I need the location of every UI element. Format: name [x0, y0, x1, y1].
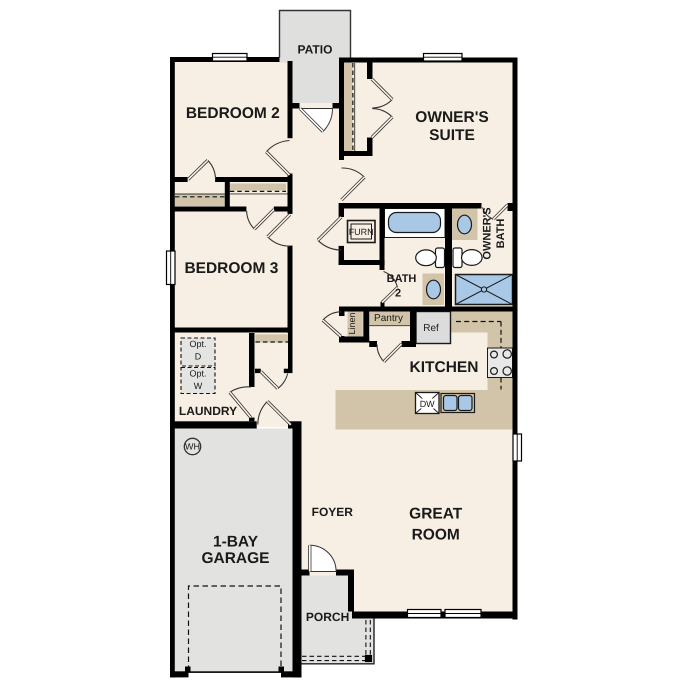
svg-text:ROOM: ROOM [412, 526, 460, 543]
svg-text:1-BAY: 1-BAY [213, 534, 259, 551]
svg-text:OWNER'S: OWNER'S [415, 109, 488, 126]
svg-text:KITCHEN: KITCHEN [410, 359, 479, 376]
svg-text:Ref: Ref [423, 323, 439, 334]
svg-text:GARAGE: GARAGE [201, 550, 269, 567]
svg-text:LAUNDRY: LAUNDRY [179, 404, 237, 418]
svg-text:2: 2 [395, 288, 401, 300]
svg-text:DW: DW [420, 399, 435, 409]
svg-text:FURN: FURN [349, 227, 374, 237]
svg-text:W: W [194, 381, 203, 391]
svg-text:BATH: BATH [495, 219, 507, 249]
svg-text:BEDROOM 2: BEDROOM 2 [186, 105, 280, 122]
svg-text:BEDROOM 3: BEDROOM 3 [184, 260, 278, 277]
svg-text:BATH: BATH [387, 273, 417, 285]
svg-text:OWNER'S: OWNER'S [482, 207, 494, 259]
svg-text:PORCH: PORCH [306, 610, 349, 624]
svg-text:SUITE: SUITE [429, 127, 475, 144]
svg-text:Opt.: Opt. [189, 369, 206, 379]
svg-text:GREAT: GREAT [409, 505, 463, 522]
svg-text:Opt.: Opt. [189, 339, 206, 349]
svg-text:WH: WH [185, 441, 200, 451]
svg-text:FOYER: FOYER [312, 505, 354, 519]
svg-text:Linen: Linen [347, 312, 357, 334]
svg-text:PATIO: PATIO [298, 43, 333, 57]
svg-text:Pantry: Pantry [374, 313, 403, 324]
svg-text:D: D [195, 352, 202, 362]
